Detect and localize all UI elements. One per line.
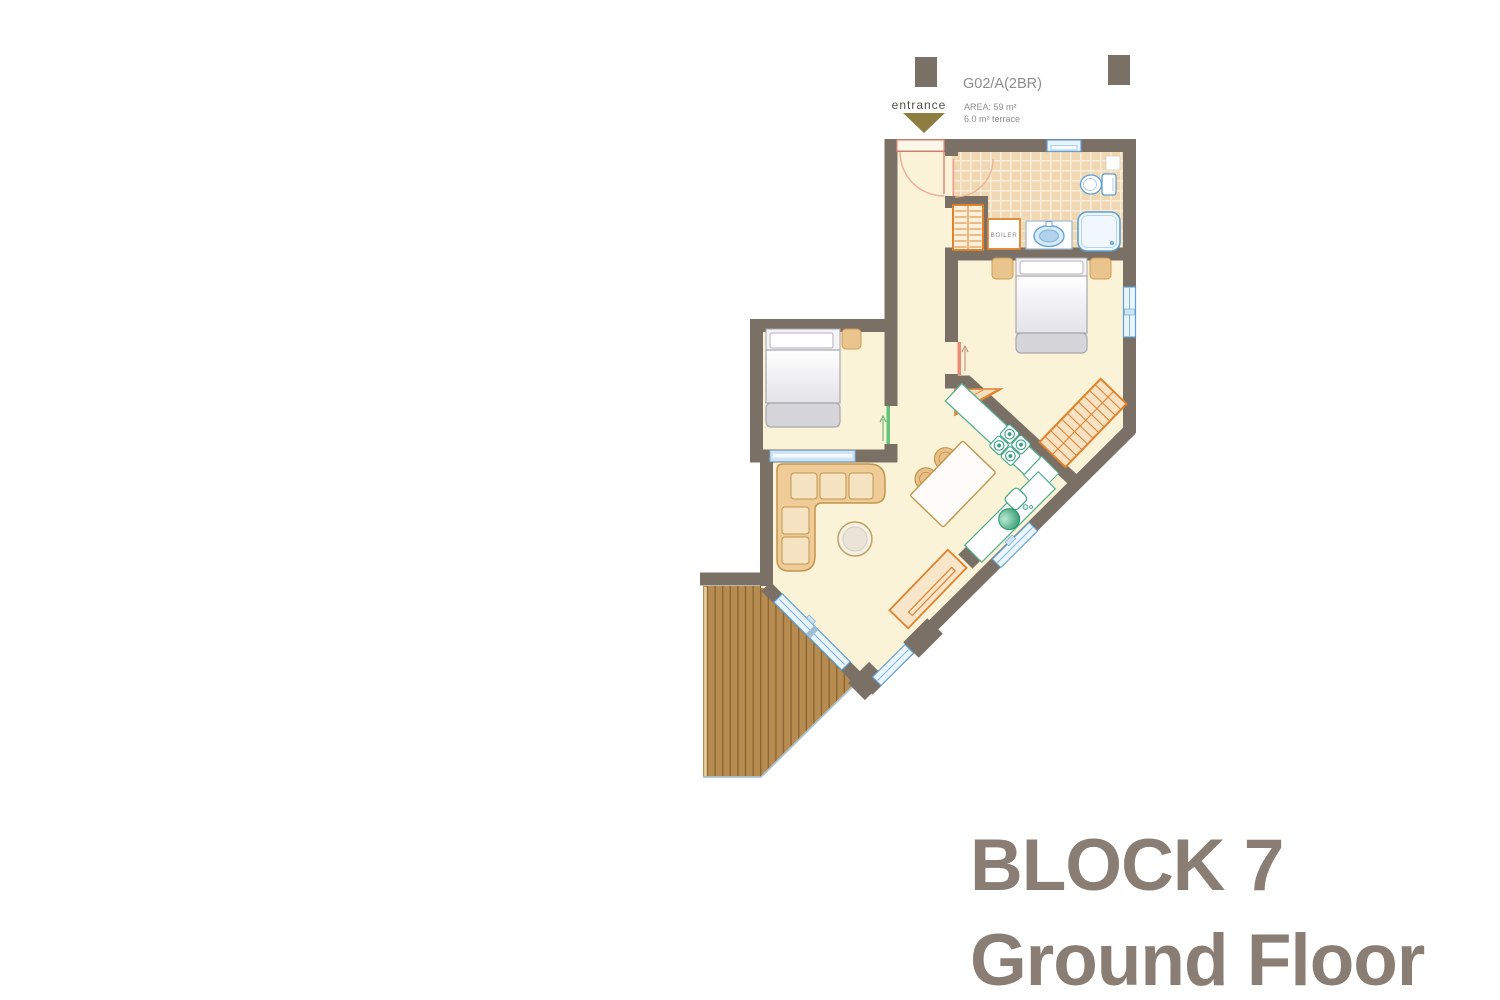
bedroom-right-window	[1124, 287, 1136, 337]
bathroom-niche	[1106, 156, 1120, 170]
nightstand	[1090, 258, 1111, 279]
nightstand	[842, 329, 861, 349]
entrance-door-opening	[897, 140, 944, 151]
unit-id-label: G02/A(2BR)	[963, 76, 1042, 92]
shower	[1078, 212, 1120, 251]
entrance-label: entrance	[880, 98, 958, 112]
bathroom-window	[1047, 140, 1081, 152]
bedroom-left-window	[770, 451, 855, 462]
plan-title-line1: BLOCK 7	[970, 818, 1424, 913]
shower-drain	[1110, 241, 1114, 245]
bathroom-closet	[953, 205, 983, 250]
column	[1108, 55, 1130, 85]
plan-title: BLOCK 7 Ground Floor	[970, 818, 1424, 1000]
floor-plan-page: BOILER	[0, 0, 1500, 1000]
plan-title-line2: Ground Floor	[970, 913, 1424, 1000]
coffee-table	[838, 522, 872, 556]
unit-area-label: AREA: 59 m²	[964, 102, 1017, 112]
boiler: BOILER	[988, 219, 1020, 249]
double-bed	[1016, 258, 1087, 353]
entrance-arrow-icon	[903, 113, 945, 133]
nightstand	[992, 258, 1013, 279]
boiler-label: BOILER	[991, 232, 1018, 239]
terrace-area-label: 6.0 m² terrace	[964, 114, 1020, 124]
single-bed	[766, 329, 840, 427]
bathroom-sink	[1026, 221, 1072, 249]
column	[915, 57, 937, 87]
toilet	[1081, 174, 1117, 195]
